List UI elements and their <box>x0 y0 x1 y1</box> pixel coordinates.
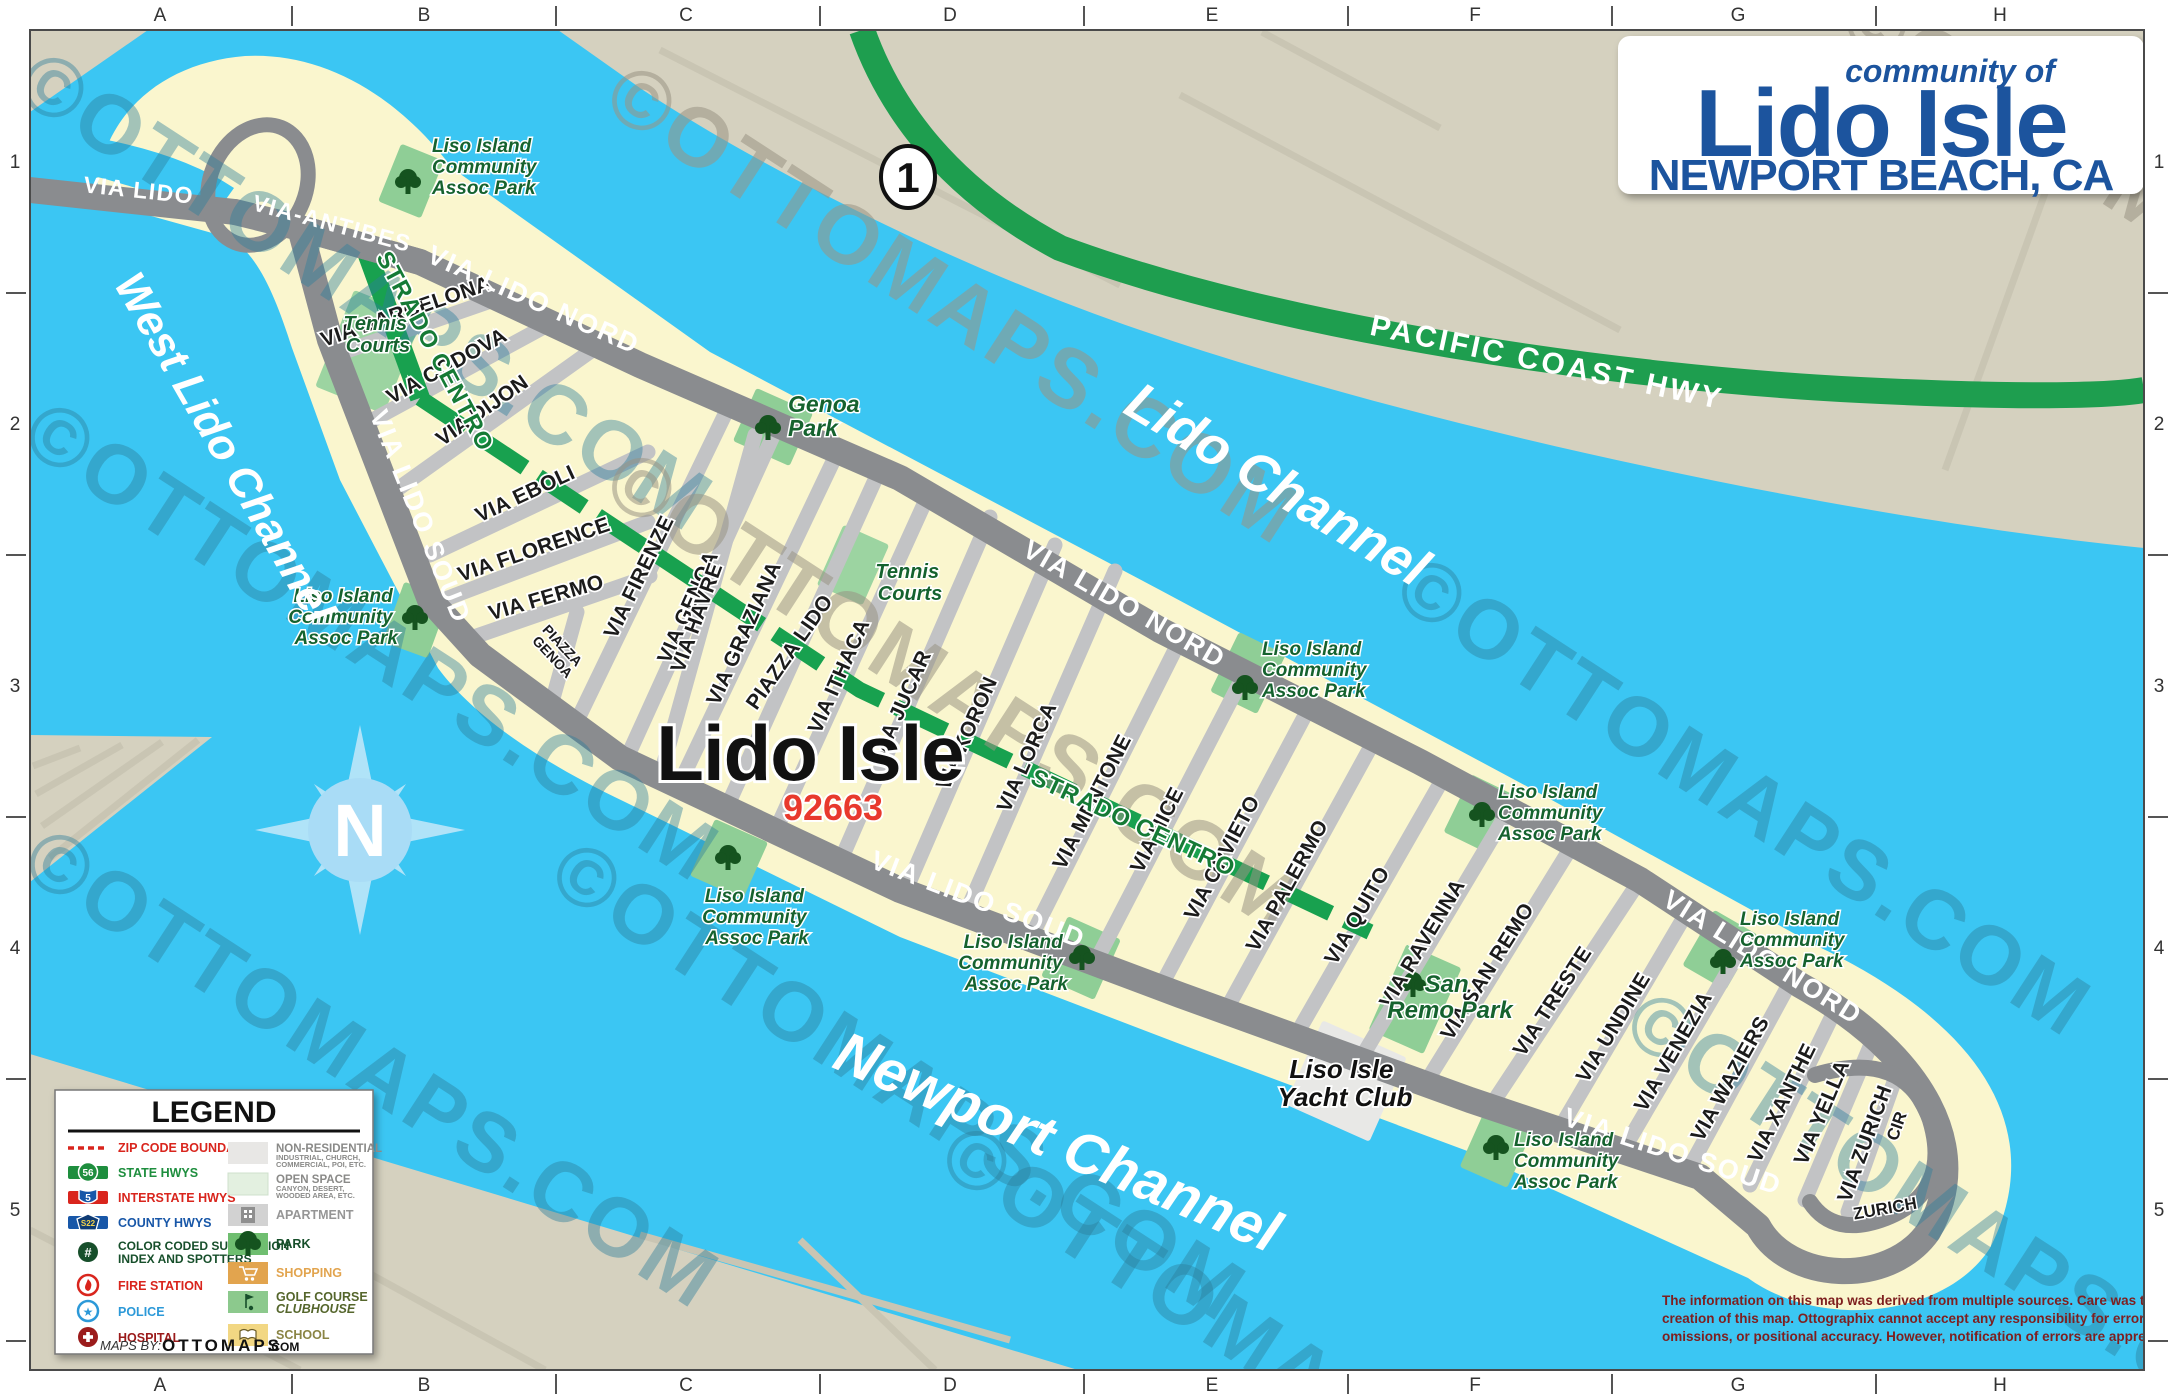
park-label-liso-6: Liso Island Community Assoc Park <box>1497 782 1608 845</box>
svg-text:5: 5 <box>85 1193 91 1204</box>
county-hwy-symbol: S22 <box>68 1214 108 1230</box>
apartment-icon <box>241 1207 255 1223</box>
svg-text:WOODED AREA, ETC.: WOODED AREA, ETC. <box>276 1191 355 1200</box>
swatch-non-residential <box>228 1142 268 1164</box>
ottomaps-tld: .COM <box>268 1340 299 1354</box>
svg-text:#: # <box>84 1245 92 1260</box>
svg-text:2: 2 <box>10 414 21 435</box>
legend-clubhouse-label: CLUBHOUSE <box>276 1302 356 1316</box>
svg-text:H: H <box>1993 1375 2007 1396</box>
svg-text:4: 4 <box>10 938 21 959</box>
tennis-courts-east-label: Tennis Courts <box>875 561 944 605</box>
svg-text:3: 3 <box>10 676 21 697</box>
svg-text:E: E <box>1206 1375 1219 1396</box>
disclaimer-line-3: omissions, or positional accuracy. Howev… <box>1662 1329 2174 1344</box>
swatch-shopping <box>228 1262 268 1284</box>
disclaimer-block: The information on this map was derived … <box>1662 1293 2174 1344</box>
compass-north-label: N <box>333 789 386 872</box>
legend-panel: LEGEND ZIP CODE BOUNDARIES 56 STATE HWYS… <box>55 1090 382 1355</box>
maps-by-label: MAPS BY: <box>100 1338 161 1353</box>
legend-fire-label: FIRE STATION <box>118 1279 203 1293</box>
svg-text:2: 2 <box>2154 414 2165 435</box>
subdivision-spotter-symbol: # <box>78 1242 98 1262</box>
svg-text:COMMERCIAL, POI, ETC.: COMMERCIAL, POI, ETC. <box>276 1160 366 1169</box>
legend-title: LEGEND <box>151 1096 276 1129</box>
svg-text:D: D <box>943 1375 957 1396</box>
legend-interstate-label: INTERSTATE HWYS <box>118 1191 236 1205</box>
interstate-hwy-symbol: 5 <box>68 1189 108 1204</box>
legend-apartment-label: APARTMENT <box>276 1208 354 1222</box>
svg-text:H: H <box>1993 5 2007 26</box>
park-label-liso-7: Liso Island Community Assoc Park <box>1739 909 1850 972</box>
svg-text:4: 4 <box>2154 938 2165 959</box>
swatch-open-space <box>228 1173 268 1195</box>
map-canvas: ©OTTOMAPS.COM ©OTTOMAPS.COM ©OTTOMAPS.CO… <box>0 0 2174 1400</box>
tennis-courts-west-label: Tennis Courts <box>343 313 412 357</box>
svg-text:S22: S22 <box>81 1219 96 1228</box>
svg-text:3: 3 <box>2154 676 2165 697</box>
park-label-liso-3: Liso Island Community Assoc Park <box>702 886 812 949</box>
svg-text:G: G <box>1731 1375 1746 1396</box>
police-icon: ★ <box>78 1301 98 1321</box>
svg-text:G: G <box>1731 5 1746 26</box>
svg-text:F: F <box>1469 5 1481 26</box>
park-label-liso-8: Liso Island Community Assoc Park <box>1513 1130 1624 1193</box>
state-route-1-shield: 1 <box>881 146 935 208</box>
park-label-liso-4: Liso Island Community Assoc Park <box>958 932 1069 995</box>
frame-top <box>0 0 2174 30</box>
ottomaps-brand: OTTOMAPS <box>162 1336 282 1355</box>
legend-footer: MAPS BY: OTTOMAPS .COM <box>100 1336 299 1355</box>
disclaimer-line-2: creation of this map. Ottographix cannot… <box>1662 1311 2156 1326</box>
zip-code-label: 92663 <box>783 787 883 828</box>
title-subtitle: NEWPORT BEACH, CA <box>1649 151 2114 200</box>
svg-text:5: 5 <box>2154 1200 2165 1221</box>
legend-park-label: PARK <box>276 1237 311 1251</box>
svg-text:1: 1 <box>10 152 21 173</box>
legend-state-label: STATE HWYS <box>118 1166 198 1180</box>
hospital-icon <box>78 1327 98 1347</box>
park-label-liso-5: Liso Island Community Assoc Park <box>1261 639 1372 702</box>
svg-text:56: 56 <box>82 1168 94 1179</box>
disclaimer-line-1: The information on this map was derived … <box>1662 1293 2174 1308</box>
svg-text:B: B <box>418 5 431 26</box>
frame-right <box>2144 0 2174 1400</box>
frame-left <box>0 0 30 1400</box>
swatch-golf <box>228 1291 268 1313</box>
lido-isle-map-page: ©OTTOMAPS.COM ©OTTOMAPS.COM ©OTTOMAPS.CO… <box>0 0 2174 1400</box>
svg-text:B: B <box>418 1375 431 1396</box>
svg-text:★: ★ <box>83 1305 94 1319</box>
svg-text:A: A <box>154 5 167 26</box>
legend-shopping-label: SHOPPING <box>276 1266 342 1280</box>
legend-police-label: POLICE <box>118 1305 165 1319</box>
island-name-label: Lido Isle <box>656 709 963 797</box>
svg-text:5: 5 <box>10 1200 21 1221</box>
svg-text:D: D <box>943 5 957 26</box>
park-label-liso-1: Liso Island Community Assoc Park <box>431 136 542 199</box>
svg-text:1: 1 <box>2154 152 2165 173</box>
svg-text:C: C <box>679 1375 693 1396</box>
legend-county-label: COUNTY HWYS <box>118 1216 212 1230</box>
svg-text:F: F <box>1469 1375 1481 1396</box>
fire-station-icon <box>78 1275 98 1295</box>
svg-text:E: E <box>1206 5 1219 26</box>
yacht-club-label: Liso Isle Yacht Club <box>1278 1054 1413 1112</box>
frame-bottom <box>0 1370 2174 1400</box>
title-block: community of Lido Isle NEWPORT BEACH, CA <box>1618 36 2144 200</box>
state-route-1-number: 1 <box>896 154 919 201</box>
svg-text:C: C <box>679 5 693 26</box>
svg-text:A: A <box>154 1375 167 1396</box>
